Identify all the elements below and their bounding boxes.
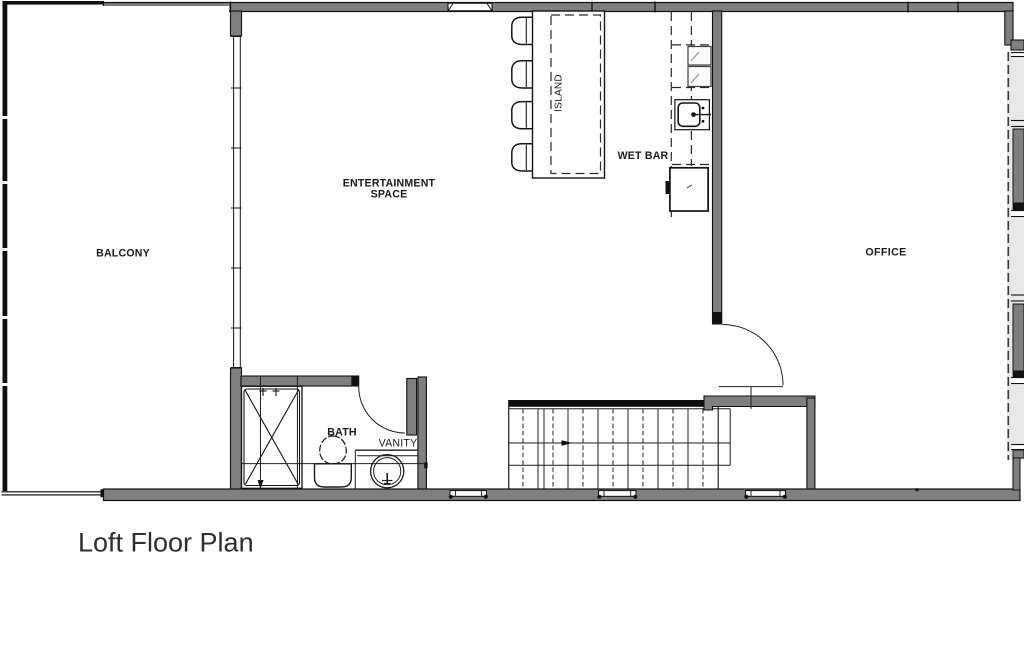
- svg-text:WET BAR: WET BAR: [618, 150, 669, 162]
- svg-text:BATH: BATH: [327, 427, 356, 439]
- svg-text:SPACE: SPACE: [371, 188, 408, 200]
- svg-text:OFFICE: OFFICE: [865, 247, 906, 259]
- svg-text:BALCONY: BALCONY: [96, 248, 150, 260]
- svg-text:ISLAND: ISLAND: [554, 74, 565, 112]
- svg-text:Loft Floor Plan: Loft Floor Plan: [78, 528, 254, 558]
- svg-text:VANITY: VANITY: [379, 438, 418, 450]
